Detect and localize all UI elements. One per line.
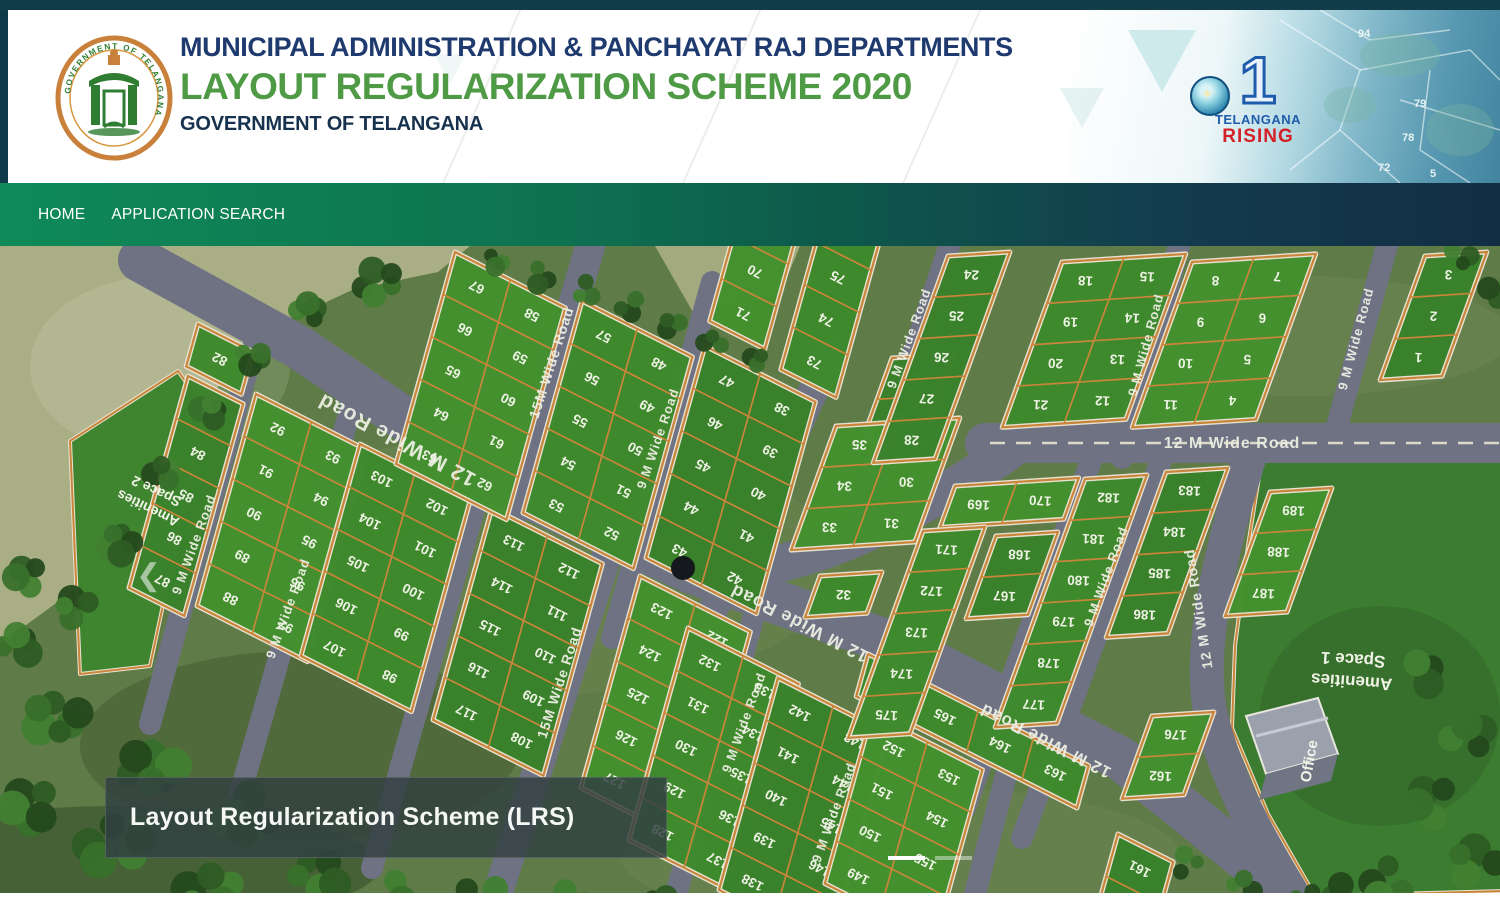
site-header: 94 79 78 72 5 GOVERNMENT OF TELANGANA bbox=[8, 10, 1500, 183]
svg-text:12 M Wide Road: 12 M Wide Road bbox=[1164, 435, 1301, 452]
svg-text:189: 189 bbox=[1282, 503, 1305, 519]
svg-text:6: 6 bbox=[1258, 310, 1267, 325]
svg-text:3: 3 bbox=[1444, 267, 1453, 282]
svg-text:5: 5 bbox=[1243, 352, 1252, 367]
svg-text:167: 167 bbox=[993, 588, 1016, 604]
svg-text:186: 186 bbox=[1132, 607, 1156, 623]
carousel-indicator-2[interactable] bbox=[935, 856, 972, 860]
svg-text:171: 171 bbox=[934, 542, 958, 558]
main-nav: HOME APPLICATION SEARCH bbox=[0, 183, 1500, 246]
page-top-border bbox=[0, 0, 1500, 10]
svg-text:176: 176 bbox=[1163, 727, 1187, 743]
svg-text:187: 187 bbox=[1252, 585, 1275, 601]
map-plot-number: 79 bbox=[1414, 98, 1426, 110]
svg-text:10: 10 bbox=[1178, 356, 1194, 372]
svg-text:28: 28 bbox=[903, 432, 919, 448]
svg-text:35: 35 bbox=[851, 437, 867, 453]
hero-carousel-slide: 8283848586879293919490958996889710310210… bbox=[0, 246, 1500, 893]
svg-text:15: 15 bbox=[1139, 269, 1155, 285]
rising-globe-icon bbox=[1190, 76, 1230, 116]
svg-text:1: 1 bbox=[1414, 350, 1423, 365]
svg-text:34: 34 bbox=[836, 478, 852, 494]
nav-item-home[interactable]: HOME bbox=[38, 206, 85, 224]
rising-line2: RISING bbox=[1206, 126, 1310, 148]
page-bottom-border bbox=[0, 893, 1500, 900]
svg-text:19: 19 bbox=[1063, 314, 1079, 330]
svg-text:169: 169 bbox=[967, 497, 990, 513]
svg-text:33: 33 bbox=[821, 519, 837, 535]
department-title: MUNICIPAL ADMINISTRATION & PANCHAYAT RAJ… bbox=[180, 32, 1013, 63]
scheme-title: LAYOUT REGULARIZATION SCHEME 2020 bbox=[180, 66, 1013, 108]
svg-text:177: 177 bbox=[1022, 696, 1045, 712]
svg-text:32: 32 bbox=[836, 587, 852, 603]
svg-text:172: 172 bbox=[920, 583, 943, 599]
carousel-prev-button[interactable]: ❮ bbox=[136, 558, 161, 593]
map-plot-number: 94 bbox=[1358, 28, 1370, 40]
svg-text:168: 168 bbox=[1007, 547, 1031, 563]
svg-text:179: 179 bbox=[1052, 614, 1075, 630]
telangana-rising-logo: 1 TELANGANA RISING bbox=[1206, 50, 1310, 148]
telangana-government-seal[interactable]: GOVERNMENT OF TELANGANA bbox=[55, 35, 173, 161]
svg-text:170: 170 bbox=[1029, 493, 1052, 509]
svg-text:173: 173 bbox=[904, 624, 928, 640]
svg-text:184: 184 bbox=[1162, 524, 1186, 540]
svg-text:18: 18 bbox=[1077, 273, 1093, 289]
svg-text:25: 25 bbox=[948, 308, 964, 324]
header-titles: MUNICIPAL ADMINISTRATION & PANCHAYAT RAJ… bbox=[180, 32, 1013, 136]
carousel-indicator-1[interactable] bbox=[888, 856, 925, 860]
svg-text:181: 181 bbox=[1081, 531, 1105, 547]
government-title: GOVERNMENT OF TELANGANA bbox=[180, 113, 1013, 136]
svg-text:24: 24 bbox=[963, 267, 979, 283]
svg-text:8: 8 bbox=[1211, 273, 1220, 288]
nav-item-application-search[interactable]: APPLICATION SEARCH bbox=[111, 206, 285, 224]
svg-text:2: 2 bbox=[1429, 308, 1437, 323]
svg-text:178: 178 bbox=[1036, 655, 1060, 671]
svg-text:162: 162 bbox=[1149, 768, 1172, 784]
map-plot-number: 72 bbox=[1378, 162, 1390, 174]
svg-text:185: 185 bbox=[1147, 565, 1171, 581]
svg-text:175: 175 bbox=[874, 707, 898, 723]
svg-text:9: 9 bbox=[1196, 314, 1204, 329]
page: 94 79 78 72 5 GOVERNMENT OF TELANGANA bbox=[0, 0, 1500, 900]
svg-text:26: 26 bbox=[933, 349, 949, 365]
svg-text:30: 30 bbox=[899, 474, 915, 490]
svg-text:13: 13 bbox=[1109, 351, 1125, 367]
svg-text:182: 182 bbox=[1097, 490, 1120, 506]
svg-text:20: 20 bbox=[1048, 356, 1064, 372]
svg-text:27: 27 bbox=[919, 391, 935, 407]
svg-text:14: 14 bbox=[1124, 310, 1140, 326]
svg-text:11: 11 bbox=[1163, 397, 1179, 413]
svg-text:183: 183 bbox=[1177, 483, 1201, 499]
map-plot-number: 78 bbox=[1402, 132, 1414, 144]
carousel-indicators bbox=[888, 856, 972, 860]
svg-text:31: 31 bbox=[883, 515, 899, 531]
svg-text:12: 12 bbox=[1095, 393, 1111, 409]
hero-caption-text: Layout Regularization Scheme (LRS) bbox=[130, 803, 574, 832]
svg-text:4: 4 bbox=[1228, 393, 1237, 408]
map-plot-number: 5 bbox=[1430, 168, 1436, 180]
svg-text:188: 188 bbox=[1266, 544, 1290, 560]
svg-text:7: 7 bbox=[1273, 269, 1281, 284]
svg-text:180: 180 bbox=[1067, 572, 1090, 588]
hero-caption: Layout Regularization Scheme (LRS) bbox=[105, 777, 667, 858]
svg-text:21: 21 bbox=[1032, 397, 1048, 413]
svg-text:174: 174 bbox=[889, 666, 913, 682]
rising-numeral: 1 bbox=[1240, 50, 1277, 110]
